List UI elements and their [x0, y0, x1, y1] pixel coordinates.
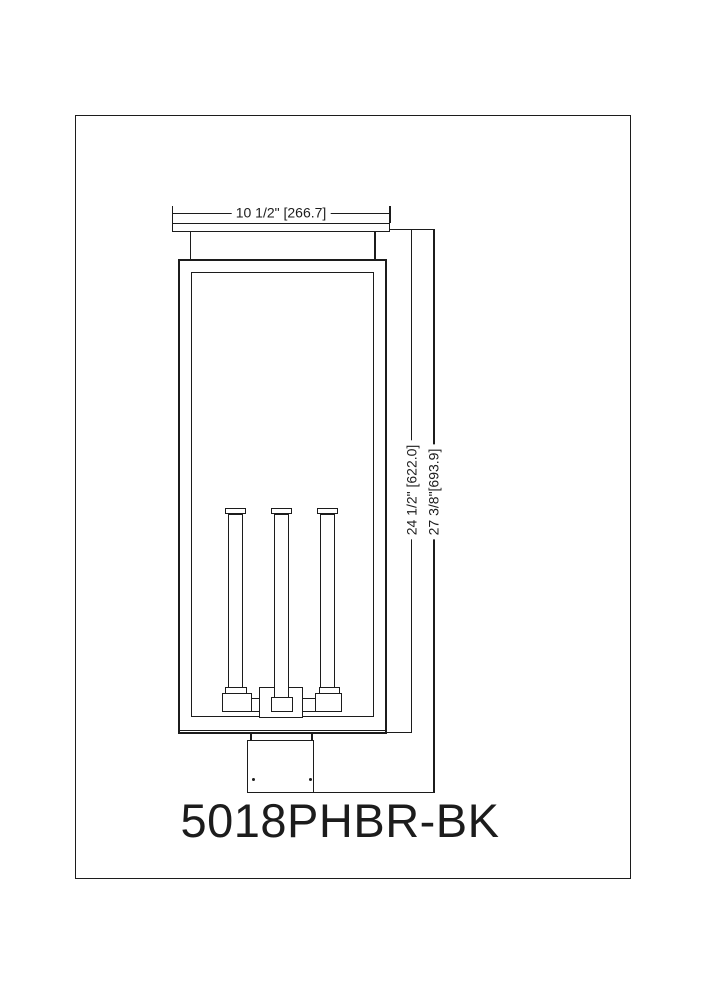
candle-center-tube: [274, 514, 289, 698]
top-extension-line: [390, 229, 435, 231]
lantern-bottom-rail-line: [178, 730, 387, 732]
post-mount-screw-right: [309, 778, 312, 781]
overall-height-dimension-label: 27 3/8"[693.9]: [426, 445, 441, 540]
width-dimension-tick-right: [389, 206, 391, 223]
lantern-top-cap: [172, 223, 390, 232]
body-height-bottom-extension: [387, 732, 412, 734]
candle-left-tube: [228, 514, 243, 689]
candle-left-holder: [222, 693, 252, 713]
width-dimension-label: 10 1/2" [266.7]: [232, 205, 331, 220]
post-mount-screw-left: [252, 778, 255, 781]
post-mount-box: [247, 740, 314, 793]
lantern-neck-right-line: [374, 231, 376, 260]
body-height-dimension-label: 24 1/2" [622.0]: [404, 441, 419, 540]
candle-right-holder: [315, 693, 342, 713]
candle-center-socket: [271, 697, 293, 712]
candle-right-tube: [320, 514, 335, 689]
lantern-neck-left-line: [190, 231, 192, 260]
model-number: 5018PHBR-BK: [181, 793, 500, 848]
width-dimension-tick-left: [172, 206, 174, 223]
spec-sheet-page: 10 1/2" [266.7] 24 1/2" [622.0] 27 3/8"[…: [0, 0, 707, 1000]
